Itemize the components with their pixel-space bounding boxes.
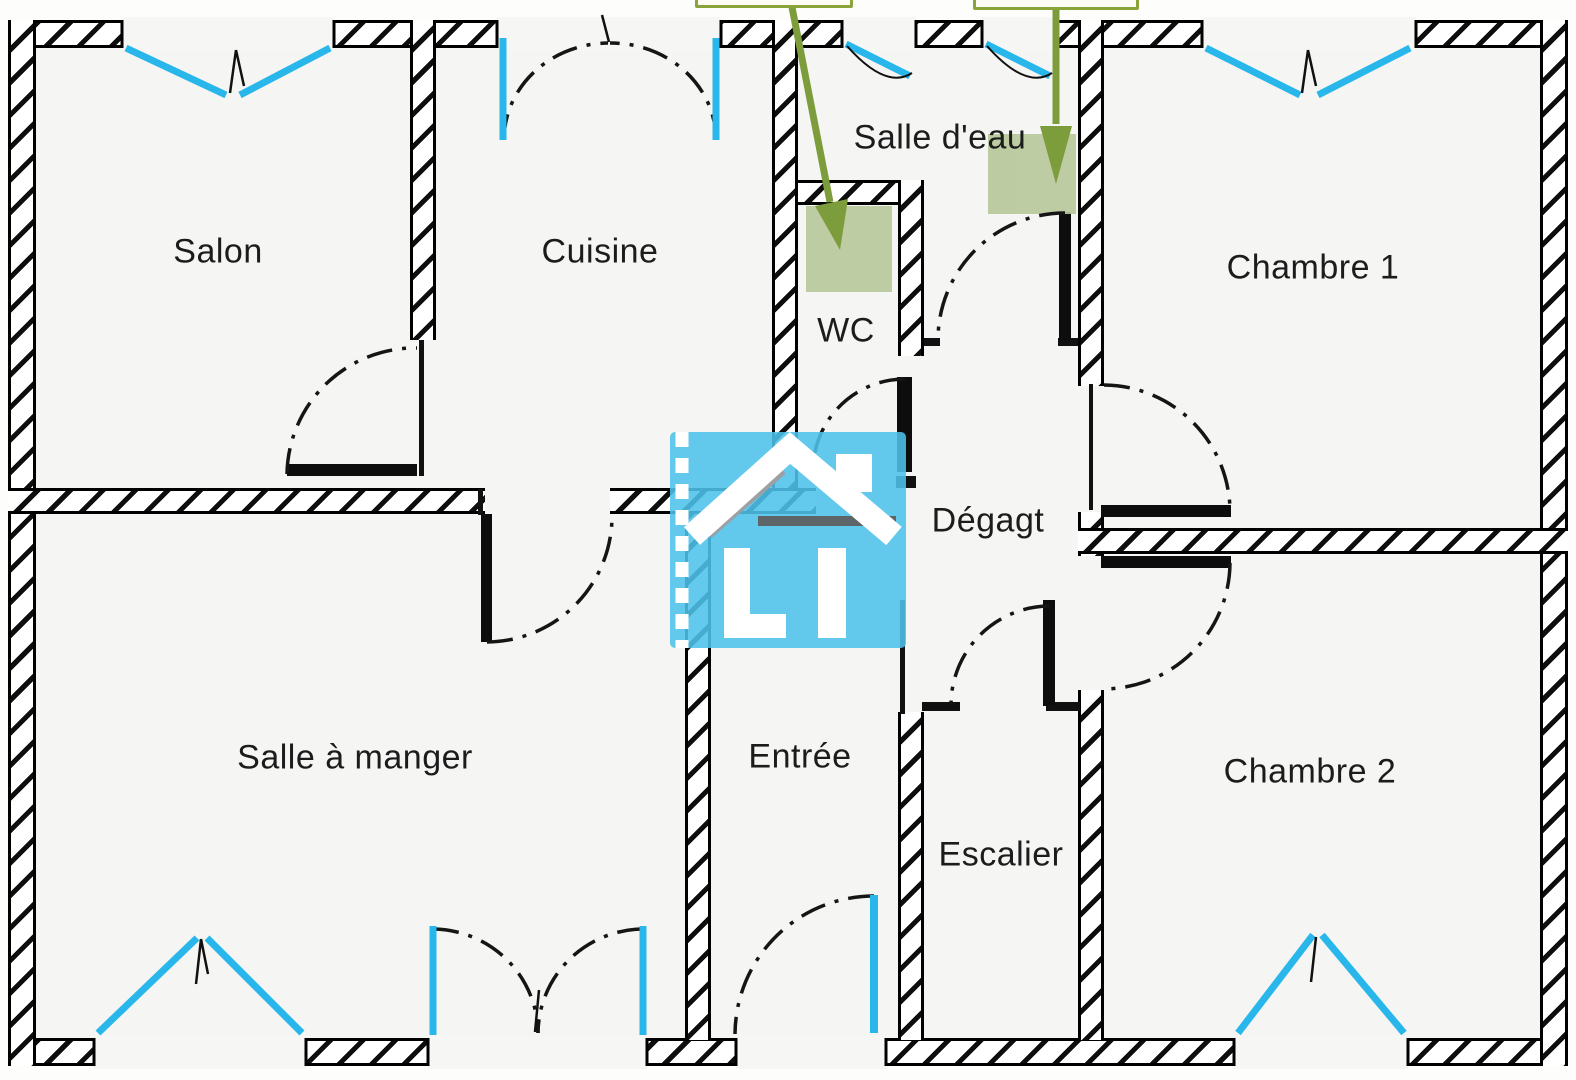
room-label-salle-deau: Salle d'eau — [854, 119, 1027, 158]
room-label-chambre2: Chambre 2 — [1224, 753, 1397, 792]
wall-cuisine-wc — [772, 20, 798, 490]
door-leaf-chambre1 — [1101, 505, 1231, 517]
annotation-callout-box-2 — [973, 0, 1139, 10]
wall-stub-escalier-left — [922, 702, 960, 711]
wall-salledeau-wc — [798, 180, 898, 205]
door-leaf-chambre2 — [1101, 556, 1231, 568]
wall-exterior-left — [8, 20, 36, 1066]
wall-chambre1-left — [1078, 20, 1104, 386]
jamb-chambre1-door — [1089, 384, 1093, 510]
wall-escalier-left — [898, 712, 924, 1040]
annotation-callout-box-1 — [695, 0, 853, 8]
room-label-chambre1: Chambre 1 — [1227, 249, 1400, 288]
wall-chambre2-left — [1078, 690, 1104, 1040]
room-label-degagement: Dégagt — [932, 502, 1045, 541]
jamb-cuisine-door — [478, 489, 483, 515]
room-label-salon: Salon — [173, 233, 262, 272]
wall-chambre1-chambre2 — [1078, 528, 1568, 554]
door-leaf-escalier — [1043, 600, 1055, 706]
watermark-house-logo-icon — [670, 432, 906, 648]
room-label-wc: WC — [817, 312, 875, 351]
wall-exterior-bottom — [8, 1038, 1568, 1066]
room-label-escalier: Escalier — [939, 836, 1064, 875]
floor-plan: Salon Cuisine Salle d'eau WC Chambre 1 D… — [0, 0, 1576, 1080]
wall-salon-cuisine — [410, 20, 436, 340]
door-leaf-salledeau — [1059, 212, 1071, 340]
room-label-entree: Entrée — [748, 738, 851, 777]
wall-wc-salledeau — [898, 180, 924, 356]
door-leaf-cuisine — [481, 514, 492, 642]
room-label-cuisine: Cuisine — [542, 233, 659, 272]
room-label-salle-a-manger: Salle à manger — [237, 739, 473, 778]
wall-salon-sallemanger — [8, 488, 485, 514]
jamb-salon-door — [419, 340, 424, 476]
wall-stub-degagt-left — [924, 338, 940, 346]
door-leaf-salon — [287, 464, 417, 476]
